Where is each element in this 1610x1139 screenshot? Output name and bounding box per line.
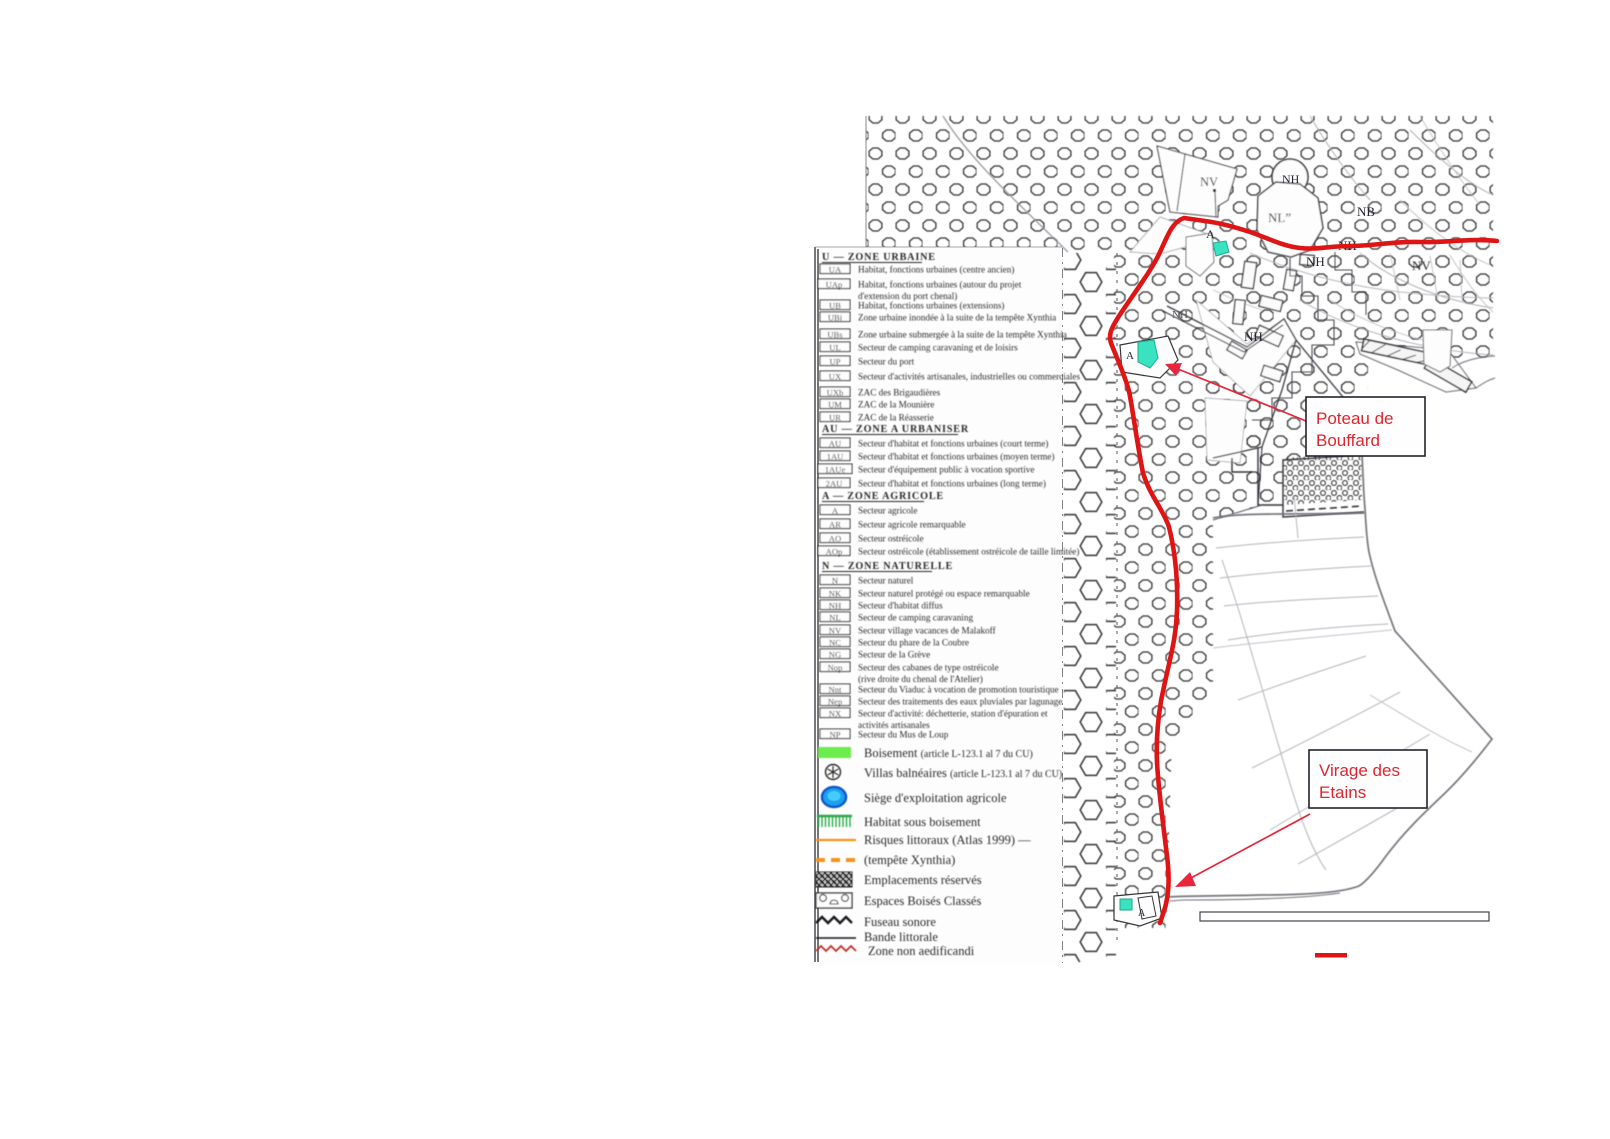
svg-text:Secteur d'habitat et fonctions: Secteur d'habitat et fonctions urbaines … xyxy=(858,439,1048,449)
svg-text:Secteur du port: Secteur du port xyxy=(858,357,915,367)
svg-text:UA: UA xyxy=(829,264,842,274)
svg-text:NL”: NL” xyxy=(1268,210,1291,225)
svg-text:AOp: AOp xyxy=(826,546,843,556)
svg-text:NB: NB xyxy=(1357,204,1375,219)
svg-text:Secteur d'activités artisanale: Secteur d'activités artisanales, industr… xyxy=(858,372,1081,382)
svg-text:Poteau de: Poteau de xyxy=(1316,409,1394,428)
svg-text:Espaces Boisés Classés: Espaces Boisés Classés xyxy=(864,894,981,908)
svg-text:Secteur de camping caravaning: Secteur de camping caravaning xyxy=(858,613,973,623)
svg-text:Nep: Nep xyxy=(828,696,842,706)
svg-text:UL: UL xyxy=(829,342,840,352)
svg-text:1AUe: 1AUe xyxy=(825,464,846,474)
svg-text:Bouffard: Bouffard xyxy=(1316,431,1380,450)
svg-text:Secteur de la Grève: Secteur de la Grève xyxy=(858,650,930,660)
svg-text:NK: NK xyxy=(829,588,842,598)
svg-text:A: A xyxy=(1138,908,1146,919)
svg-text:Secteur agricole: Secteur agricole xyxy=(858,506,917,516)
svg-text:Zone urbaine inondée à la suit: Zone urbaine inondée à la suite de la te… xyxy=(858,313,1056,323)
svg-text:Secteur du phare de la Coubre: Secteur du phare de la Coubre xyxy=(858,638,969,648)
svg-text:Emplacements réservés: Emplacements réservés xyxy=(864,873,982,887)
svg-text:Bande littorale: Bande littorale xyxy=(864,930,938,944)
svg-text:AR: AR xyxy=(829,519,841,529)
svg-text:Habitat, fonctions urbaines (a: Habitat, fonctions urbaines (autour du p… xyxy=(858,280,1022,290)
svg-text:UR: UR xyxy=(829,412,841,422)
svg-text:NH: NH xyxy=(829,600,841,610)
svg-text:UBi: UBi xyxy=(828,312,843,322)
svg-text:UX: UX xyxy=(829,371,842,381)
svg-text:NX: NX xyxy=(829,708,842,718)
svg-text:Habitat, fonctions urbaines (e: Habitat, fonctions urbaines (extensions) xyxy=(858,301,1004,311)
svg-text:Zone non aedificandi: Zone non aedificandi xyxy=(868,944,975,958)
svg-text:Secteur village vacances de Ma: Secteur village vacances de Malakoff xyxy=(858,626,997,636)
svg-text:NL: NL xyxy=(829,612,840,622)
svg-text:Secteur ostréicole (établissem: Secteur ostréicole (établissement ostréi… xyxy=(858,547,1079,557)
svg-text:NV: NV xyxy=(1412,258,1431,273)
svg-text:AU — ZONE A URBANISER: AU — ZONE A URBANISER xyxy=(822,424,969,435)
svg-text:Risques littoraux (Atlas 1999): Risques littoraux (Atlas 1999) — xyxy=(864,833,1031,847)
svg-text:UBs: UBs xyxy=(827,329,843,339)
svg-text:d'extension du port chenal): d'extension du port chenal) xyxy=(858,291,957,301)
svg-text:activités artisanales: activités artisanales xyxy=(858,720,930,730)
svg-text:NH: NH xyxy=(1282,172,1300,186)
svg-text:A — ZONE AGRICOLE: A — ZONE AGRICOLE xyxy=(822,491,944,502)
svg-text:UP: UP xyxy=(830,356,841,366)
svg-text:NV: NV xyxy=(1200,175,1218,189)
svg-text:Habitat, fonctions urbaines (c: Habitat, fonctions urbaines (centre anci… xyxy=(858,265,1014,275)
svg-text:UAp: UAp xyxy=(826,279,843,289)
svg-text:Secteur ostréicole: Secteur ostréicole xyxy=(858,534,924,544)
svg-text:Secteur d'habitat et fonctions: Secteur d'habitat et fonctions urbaines … xyxy=(858,452,1055,462)
svg-text:ZAC de la Mounière: ZAC de la Mounière xyxy=(858,400,934,410)
svg-text:NH: NH xyxy=(1306,254,1325,269)
svg-text:Secteur de camping caravaning: Secteur de camping caravaning et de lois… xyxy=(858,343,1018,353)
svg-text:AO: AO xyxy=(829,533,841,543)
svg-text:NP: NP xyxy=(830,729,841,739)
svg-text:2AU: 2AU xyxy=(826,478,844,488)
svg-text:Virage des: Virage des xyxy=(1319,761,1400,780)
svg-text:Secteur d'activité: déchetteri: Secteur d'activité: déchetterie, station… xyxy=(858,709,1048,719)
svg-text:A: A xyxy=(1206,227,1215,241)
svg-text:Fuseau sonore: Fuseau sonore xyxy=(864,915,936,929)
svg-text:Secteur du Viaduc à vocation d: Secteur du Viaduc à vocation de promotio… xyxy=(858,685,1059,695)
svg-text:UM: UM xyxy=(828,399,842,409)
svg-text:A: A xyxy=(832,505,839,515)
svg-text:Secteur des traitements des ea: Secteur des traitements des eaux pluvial… xyxy=(858,697,1062,707)
svg-text:Nop: Nop xyxy=(828,662,843,672)
svg-text:AU: AU xyxy=(829,438,842,448)
svg-text:Secteur du Mus de Loup: Secteur du Mus de Loup xyxy=(858,730,949,740)
svg-text:Secteur d'habitat et fonctions: Secteur d'habitat et fonctions urbaines … xyxy=(858,479,1046,489)
svg-text:ZAC des Brigaudières: ZAC des Brigaudières xyxy=(858,388,941,398)
svg-text:Habitat sous boisement: Habitat sous boisement xyxy=(864,815,981,829)
svg-text:N: N xyxy=(832,575,839,585)
svg-text:UB: UB xyxy=(829,300,841,310)
svg-text:ZAC de la Réasserie: ZAC de la Réasserie xyxy=(858,413,934,423)
svg-text:Secteur agricole remarquable: Secteur agricole remarquable xyxy=(858,520,966,530)
svg-text:NG: NG xyxy=(829,649,841,659)
svg-text:UXb: UXb xyxy=(827,387,844,397)
svg-text:Secteur naturel: Secteur naturel xyxy=(858,576,914,586)
svg-text:Secteur naturel protégé ou esp: Secteur naturel protégé ou espace remarq… xyxy=(858,589,1030,599)
svg-text:Nnt: Nnt xyxy=(829,684,843,694)
svg-text:N — ZONE NATURELLE: N — ZONE NATURELLE xyxy=(822,561,953,572)
svg-text:1AU: 1AU xyxy=(827,451,845,461)
svg-text:NH: NH xyxy=(1172,309,1188,321)
svg-text:(rive droite du chenal de l'At: (rive droite du chenal de l'Atelier) xyxy=(858,674,983,684)
svg-text:Etains: Etains xyxy=(1319,783,1366,802)
svg-text:Boisement (article L-123.1 al: Boisement (article L-123.1 al 7 du CU) xyxy=(864,746,1033,760)
svg-text:Secteur d'équipement public à: Secteur d'équipement public à vocation s… xyxy=(858,465,1034,475)
svg-text:NC: NC xyxy=(829,637,841,647)
svg-text:Siège d'exploitation agricole: Siège d'exploitation agricole xyxy=(864,791,1007,805)
svg-text:Secteur d'habitat diffus: Secteur d'habitat diffus xyxy=(858,601,943,611)
svg-text:Zone urbaine submergée à la su: Zone urbaine submergée à la suite de la … xyxy=(858,330,1067,340)
svg-text:(tempête Xynthia): (tempête Xynthia) xyxy=(864,853,955,867)
svg-text:A: A xyxy=(1126,350,1134,362)
svg-text:Villas balnéaires (article L-1: Villas balnéaires (article L-123.1 al 7 … xyxy=(864,766,1062,780)
svg-text:U — ZONE URBAINE: U — ZONE URBAINE xyxy=(822,252,936,263)
svg-text:Secteur des cabanes de type os: Secteur des cabanes de type ostréicole xyxy=(858,663,999,673)
svg-text:NV: NV xyxy=(829,625,842,635)
svg-text:NH: NH xyxy=(1244,329,1263,344)
